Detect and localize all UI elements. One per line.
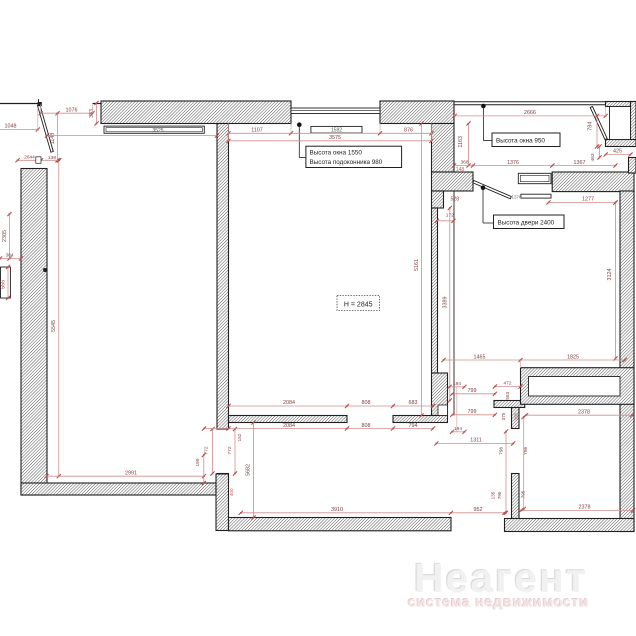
svg-text:772: 772 bbox=[204, 446, 210, 454]
svg-text:152: 152 bbox=[237, 433, 242, 441]
svg-text:2991: 2991 bbox=[125, 470, 137, 476]
svg-text:1376: 1376 bbox=[511, 195, 522, 200]
svg-text:2378: 2378 bbox=[579, 505, 591, 511]
svg-text:1311: 1311 bbox=[470, 438, 482, 444]
svg-text:3525: 3525 bbox=[152, 128, 163, 134]
svg-text:463: 463 bbox=[590, 153, 596, 161]
svg-text:199: 199 bbox=[195, 458, 201, 466]
svg-text:425: 425 bbox=[613, 149, 622, 155]
svg-text:5545: 5545 bbox=[51, 320, 57, 332]
svg-text:795: 795 bbox=[520, 490, 525, 498]
svg-text:1107: 1107 bbox=[251, 128, 263, 134]
svg-text:876: 876 bbox=[404, 128, 413, 134]
svg-text:H = 2845: H = 2845 bbox=[344, 301, 373, 308]
svg-text:2084: 2084 bbox=[283, 400, 295, 406]
svg-text:1148: 1148 bbox=[50, 133, 56, 145]
svg-text:555: 555 bbox=[0, 280, 6, 289]
svg-text:194: 194 bbox=[454, 426, 462, 432]
svg-text:3575: 3575 bbox=[329, 135, 341, 141]
svg-text:135: 135 bbox=[491, 491, 496, 499]
svg-text:2084: 2084 bbox=[283, 423, 295, 429]
svg-text:1376: 1376 bbox=[507, 160, 519, 166]
svg-text:384: 384 bbox=[5, 253, 13, 259]
svg-text:808: 808 bbox=[362, 400, 371, 406]
svg-text:318: 318 bbox=[514, 413, 519, 421]
svg-text:796: 796 bbox=[499, 446, 505, 454]
svg-text:3910: 3910 bbox=[331, 507, 343, 513]
svg-text:799: 799 bbox=[468, 409, 477, 415]
svg-text:1367: 1367 bbox=[574, 160, 586, 166]
svg-text:795: 795 bbox=[497, 491, 502, 499]
svg-text:553: 553 bbox=[505, 392, 510, 400]
svg-text:2305: 2305 bbox=[2, 230, 8, 242]
svg-text:472: 472 bbox=[503, 381, 511, 387]
svg-text:528: 528 bbox=[450, 196, 459, 202]
svg-text:1825: 1825 bbox=[567, 354, 579, 360]
svg-text:Высота окна 950: Высота окна 950 bbox=[496, 138, 545, 145]
svg-text:952: 952 bbox=[474, 507, 483, 513]
svg-text:400: 400 bbox=[229, 488, 234, 496]
svg-text:1465: 1465 bbox=[474, 354, 486, 360]
svg-text:Высота двери 2400: Высота двери 2400 bbox=[498, 220, 555, 227]
svg-text:148: 148 bbox=[456, 167, 465, 173]
svg-text:794: 794 bbox=[409, 423, 418, 429]
svg-text:138: 138 bbox=[48, 155, 56, 161]
svg-text:2644: 2644 bbox=[24, 155, 35, 161]
svg-text:1277: 1277 bbox=[582, 197, 594, 203]
svg-text:3389: 3389 bbox=[442, 297, 448, 309]
svg-text:375: 375 bbox=[501, 412, 506, 420]
svg-text:796: 796 bbox=[523, 446, 529, 454]
svg-text:1048: 1048 bbox=[5, 124, 17, 130]
svg-text:194: 194 bbox=[453, 381, 461, 387]
svg-text:799: 799 bbox=[468, 388, 477, 394]
svg-text:2378: 2378 bbox=[578, 409, 590, 415]
svg-text:1592: 1592 bbox=[331, 128, 342, 134]
svg-text:2666: 2666 bbox=[524, 110, 536, 116]
svg-text:772: 772 bbox=[227, 446, 233, 454]
svg-text:333: 333 bbox=[89, 109, 95, 118]
svg-text:1076: 1076 bbox=[66, 107, 78, 113]
svg-text:5682: 5682 bbox=[245, 464, 251, 476]
svg-text:808: 808 bbox=[362, 423, 371, 429]
svg-text:3124: 3124 bbox=[607, 269, 613, 281]
svg-text:683: 683 bbox=[409, 400, 418, 406]
svg-text:Высота подоконника 980: Высота подоконника 980 bbox=[310, 159, 383, 166]
svg-text:1163: 1163 bbox=[458, 136, 464, 148]
svg-text:5161: 5161 bbox=[414, 259, 420, 271]
svg-text:Высота окна 1550: Высота окна 1550 bbox=[310, 150, 363, 157]
svg-text:784: 784 bbox=[588, 122, 594, 131]
svg-text:368: 368 bbox=[460, 159, 468, 165]
